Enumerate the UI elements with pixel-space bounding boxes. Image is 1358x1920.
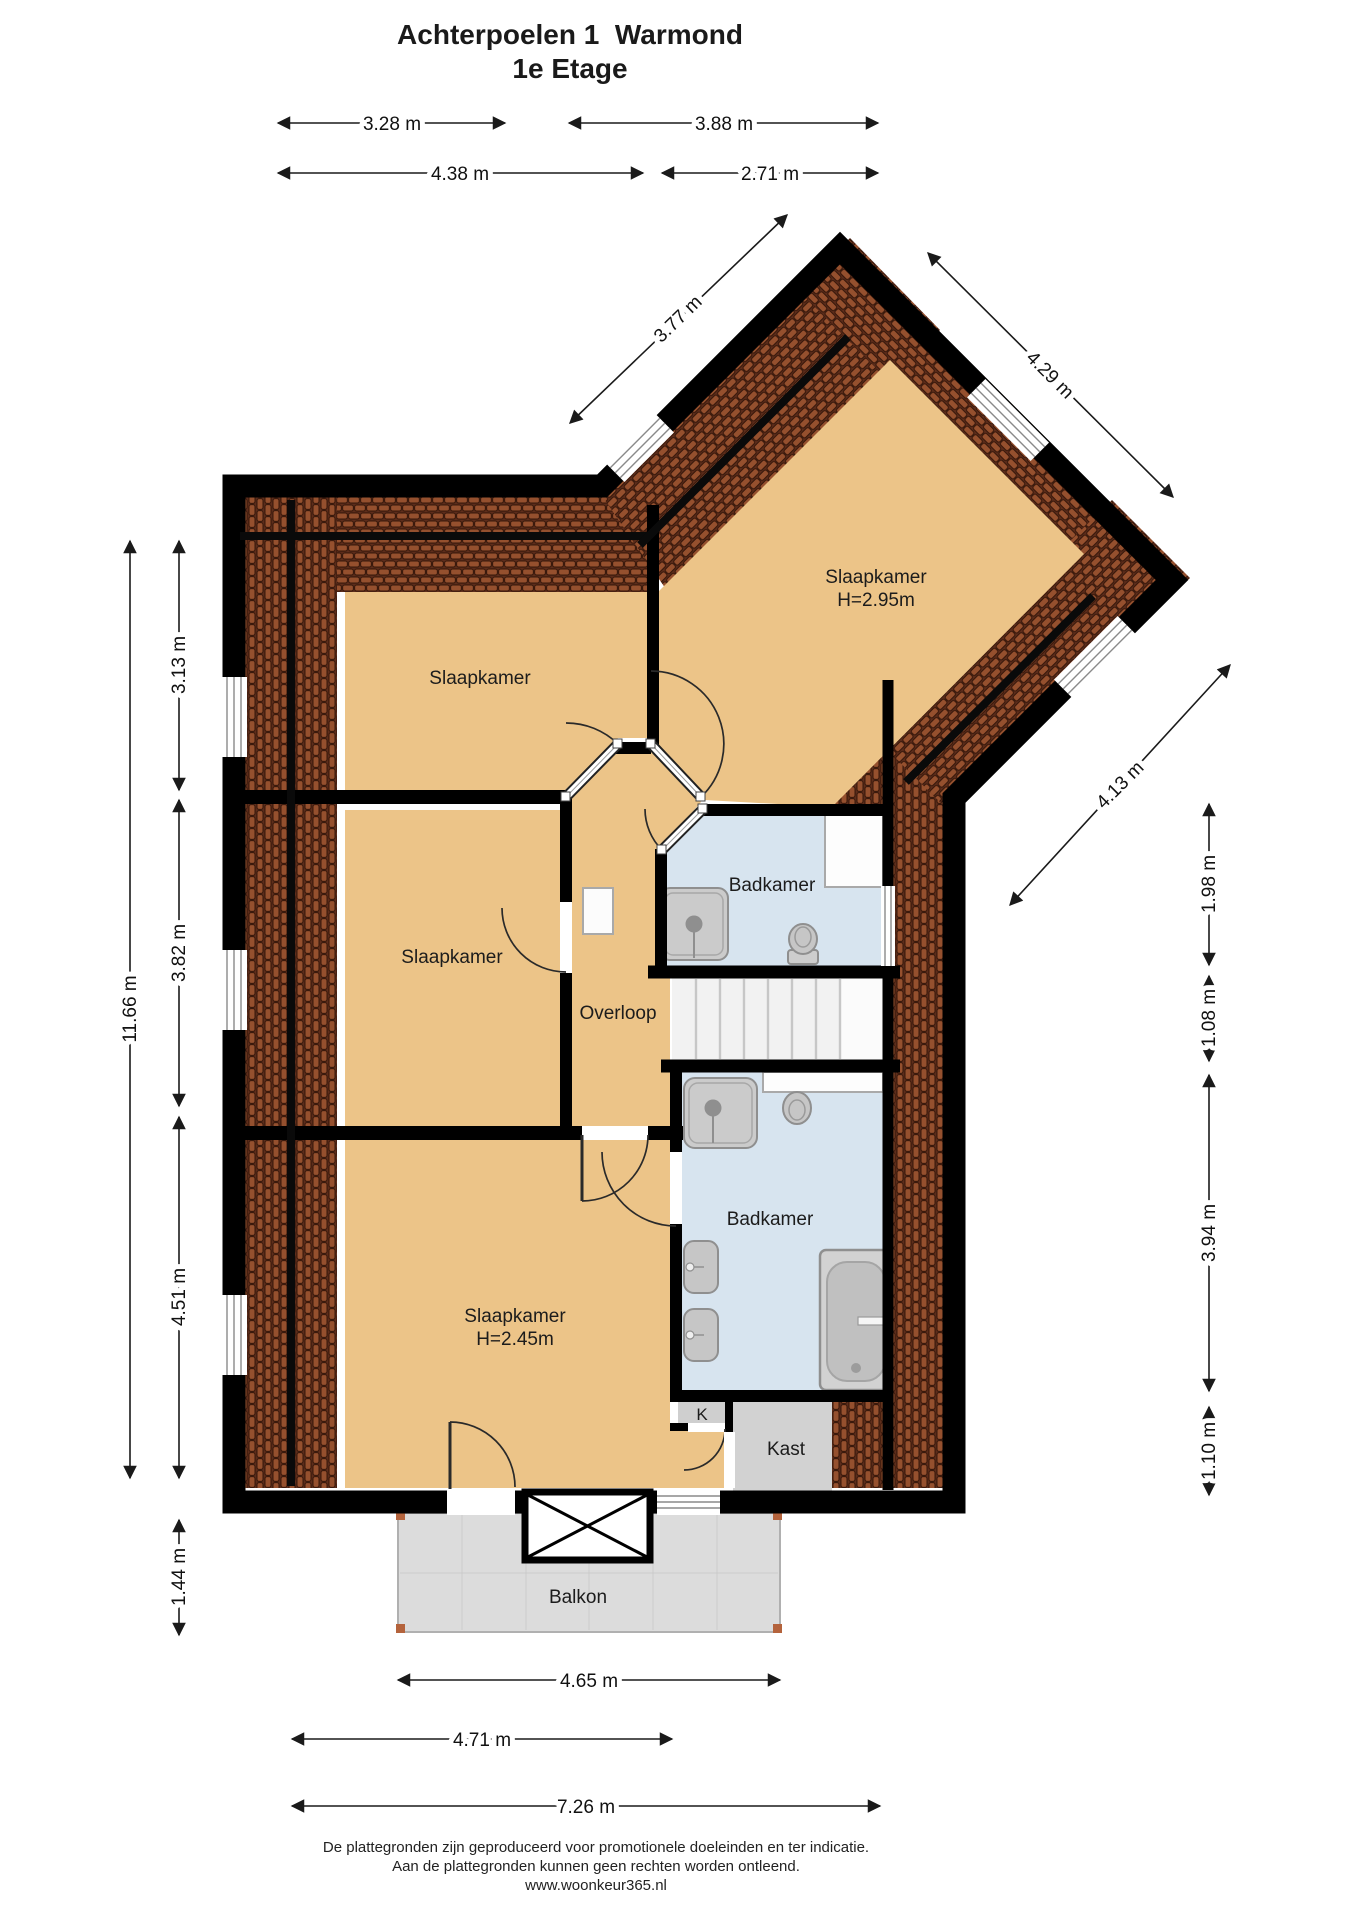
balcony-window bbox=[657, 1489, 720, 1515]
dimension-label: 1.98 m bbox=[1199, 855, 1220, 913]
footer-disclaimer-1: De plattegronden zijn geproduceerd voor … bbox=[323, 1839, 869, 1856]
dimension-label: 11.66 m bbox=[120, 975, 141, 1042]
dimension-label: 4.65 m bbox=[560, 1671, 618, 1692]
dimension-label: 3.82 m bbox=[169, 924, 190, 982]
room-label-bedroom-large-height: H=2.45m bbox=[476, 1329, 554, 1350]
room-label-bathroom-bottom: Badkamer bbox=[727, 1209, 814, 1230]
dimension-label: 1.10 m bbox=[1199, 1422, 1220, 1480]
window-west-3 bbox=[221, 1295, 247, 1375]
room-label-landing: Overloop bbox=[579, 1003, 656, 1024]
cabinet-landing bbox=[583, 888, 613, 934]
floorplan-canvas: Achterpoelen 1 Warmond 1e Etage bbox=[0, 0, 1358, 1920]
room-label-bedroom-middle: Slaapkamer bbox=[401, 947, 503, 968]
dimension-label: 3.28 m bbox=[363, 114, 421, 135]
window-west-2 bbox=[221, 950, 247, 1030]
dimension-label: 7.26 m bbox=[557, 1797, 615, 1818]
dimension-label: 1.08 m bbox=[1199, 989, 1220, 1047]
footer-disclaimer-2: Aan de plattegronden kunnen geen rechten… bbox=[392, 1858, 800, 1875]
toilet-bottom-bathroom bbox=[783, 1092, 811, 1124]
dimension-label: 4.71 m bbox=[453, 1730, 511, 1751]
room-bedroom-middle-left bbox=[345, 810, 560, 1127]
dimension-label: 3.77 m bbox=[650, 292, 706, 347]
shower-top-bathroom bbox=[660, 888, 728, 960]
footer: De plattegronden zijn geproduceerd voor … bbox=[323, 1839, 869, 1894]
vanity-top-bathroom bbox=[825, 815, 883, 887]
dimension-label: 4.51 m bbox=[169, 1268, 190, 1326]
window-bathroom-east bbox=[881, 886, 895, 966]
page-subtitle: 1e Etage bbox=[512, 53, 627, 84]
door-closet bbox=[724, 1432, 735, 1488]
room-label-closet: Kast bbox=[767, 1439, 806, 1460]
room-label-bedroom-top-left: Slaapkamer bbox=[429, 668, 531, 689]
floorplan-page: Achterpoelen 1 Warmond 1e Etage bbox=[0, 0, 1358, 1920]
sink-2 bbox=[684, 1309, 718, 1361]
dimension-label: 2.71 m bbox=[741, 164, 799, 185]
skylight-void bbox=[525, 1492, 650, 1560]
room-label-closet-small: K bbox=[696, 1405, 708, 1424]
dimension-label: 4.13 m bbox=[1092, 757, 1148, 813]
footer-website: www.woonkeur365.nl bbox=[524, 1877, 667, 1894]
dimension-label: 3.88 m bbox=[695, 114, 753, 135]
toilet-top-bathroom bbox=[788, 924, 818, 964]
shower-bottom-bathroom bbox=[684, 1078, 757, 1148]
page-title: Achterpoelen 1 Warmond bbox=[397, 19, 743, 50]
dimension-label: 4.38 m bbox=[431, 164, 489, 185]
room-label-balcony: Balkon bbox=[549, 1587, 607, 1608]
room-label-bedroom-wing: Slaapkamer bbox=[825, 567, 927, 588]
dimension-label: 3.94 m bbox=[1199, 1204, 1220, 1262]
sink-1 bbox=[684, 1241, 718, 1293]
bathtub bbox=[820, 1250, 892, 1390]
dimension-label: 4.29 m bbox=[1022, 347, 1078, 403]
window-west-1 bbox=[221, 677, 247, 757]
room-label-bedroom-wing-height: H=2.95m bbox=[837, 590, 915, 611]
room-label-bedroom-large: Slaapkamer bbox=[464, 1306, 566, 1327]
counter-bottom-bathroom bbox=[763, 1072, 883, 1092]
dimension-label: 1.44 m bbox=[169, 1548, 190, 1606]
staircase bbox=[672, 977, 886, 1061]
dimension-label: 3.13 m bbox=[169, 636, 190, 694]
room-label-bathroom-top: Badkamer bbox=[729, 875, 816, 896]
